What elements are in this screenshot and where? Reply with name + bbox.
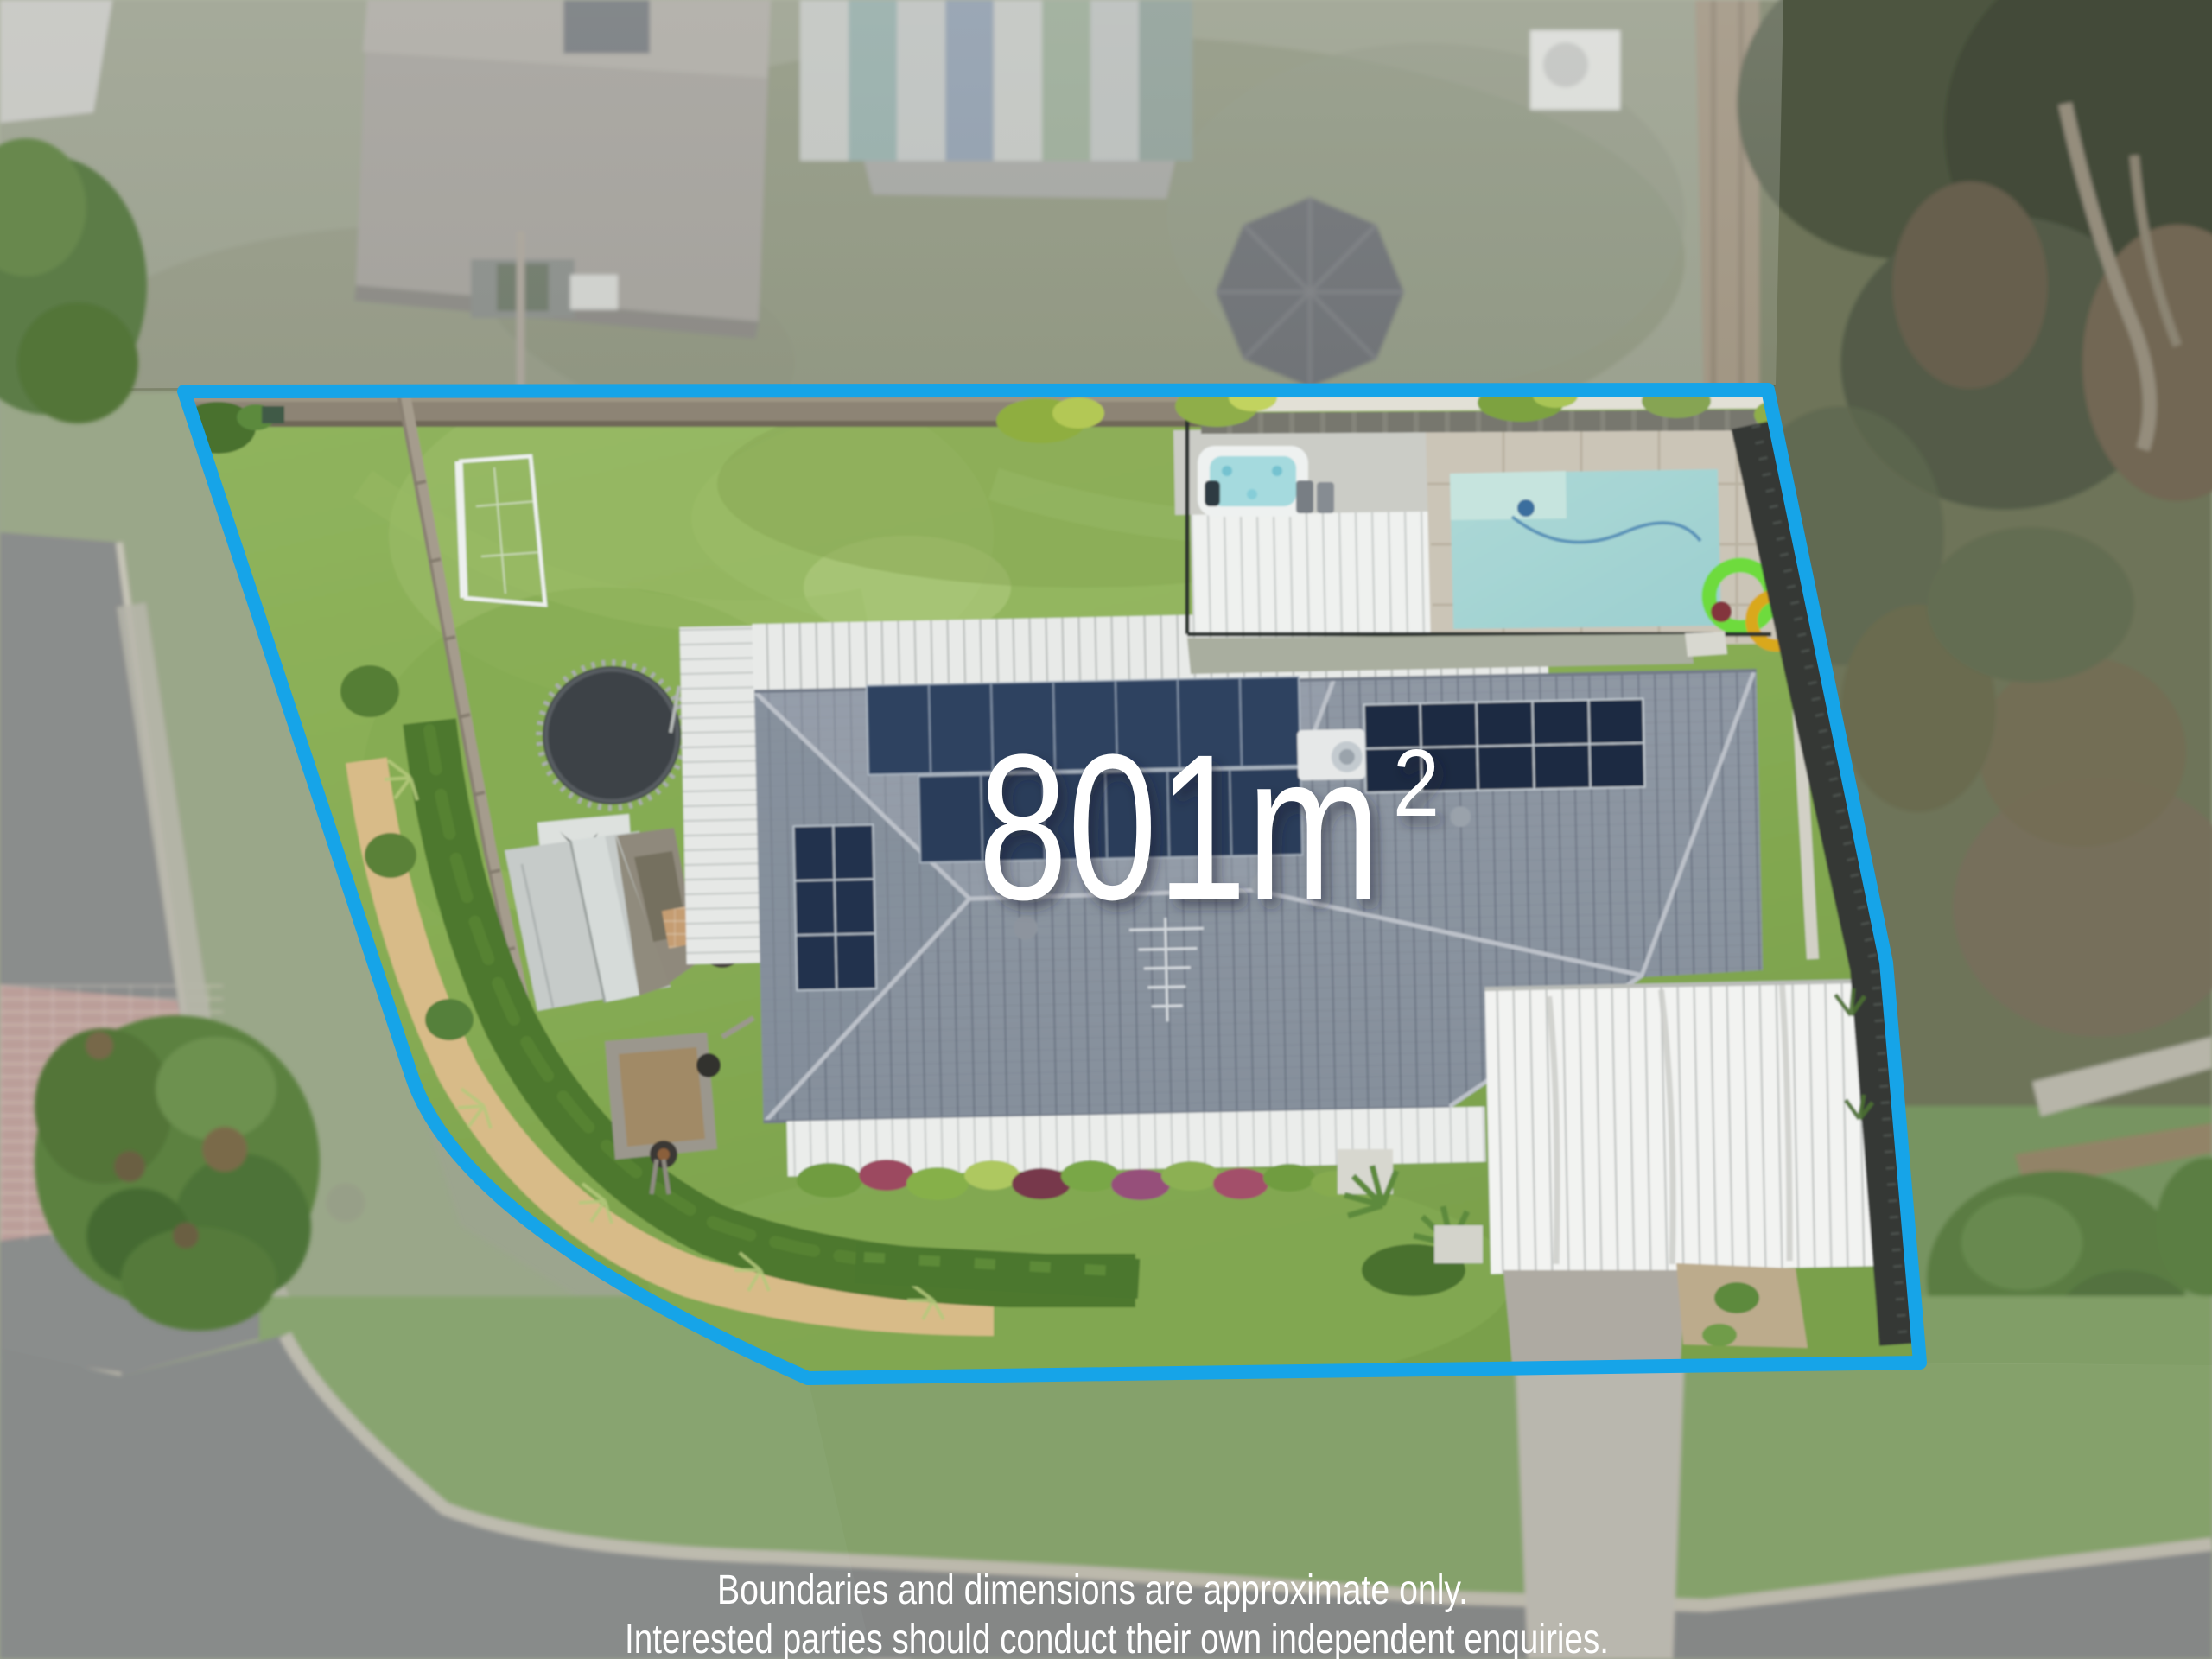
svg-text:Interested parties should cond: Interested parties should conduct their …: [625, 1617, 1609, 1659]
svg-text:Boundaries and dimensions are: Boundaries and dimensions are approximat…: [717, 1567, 1468, 1613]
svg-text:2: 2: [1393, 730, 1440, 836]
svg-text:801m: 801m: [978, 711, 1381, 943]
